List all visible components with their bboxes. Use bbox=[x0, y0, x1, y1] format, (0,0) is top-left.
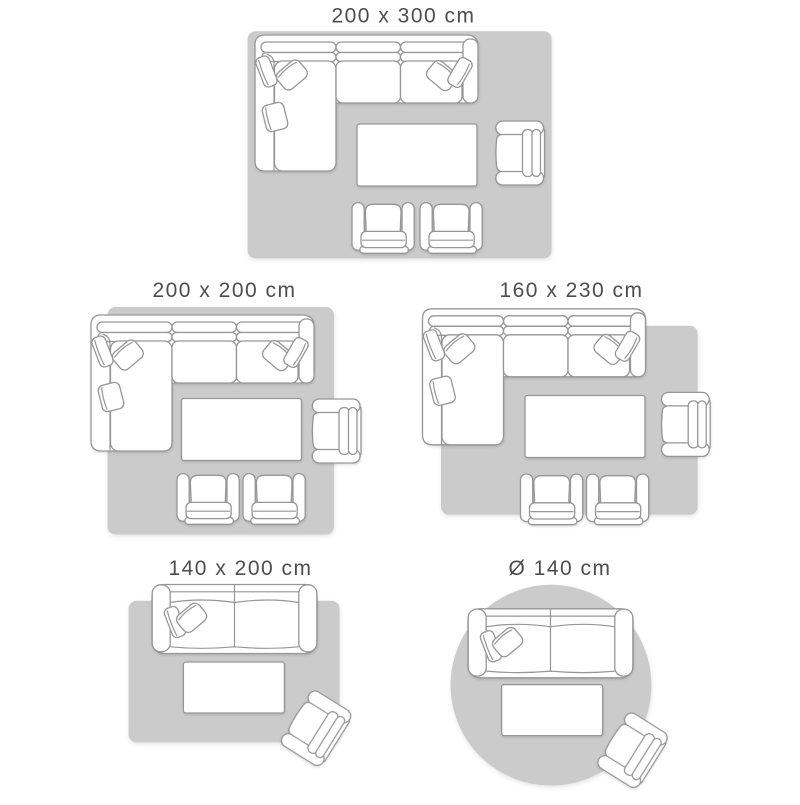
svg-text:Ø 140 cm: Ø 140 cm bbox=[508, 557, 611, 580]
svg-text:200 x 200 cm: 200 x 200 cm bbox=[152, 279, 296, 302]
svg-text:140 x 200 cm: 140 x 200 cm bbox=[168, 557, 312, 580]
svg-text:200 x 300 cm: 200 x 300 cm bbox=[331, 5, 475, 28]
svg-text:160 x 230 cm: 160 x 230 cm bbox=[499, 279, 643, 302]
